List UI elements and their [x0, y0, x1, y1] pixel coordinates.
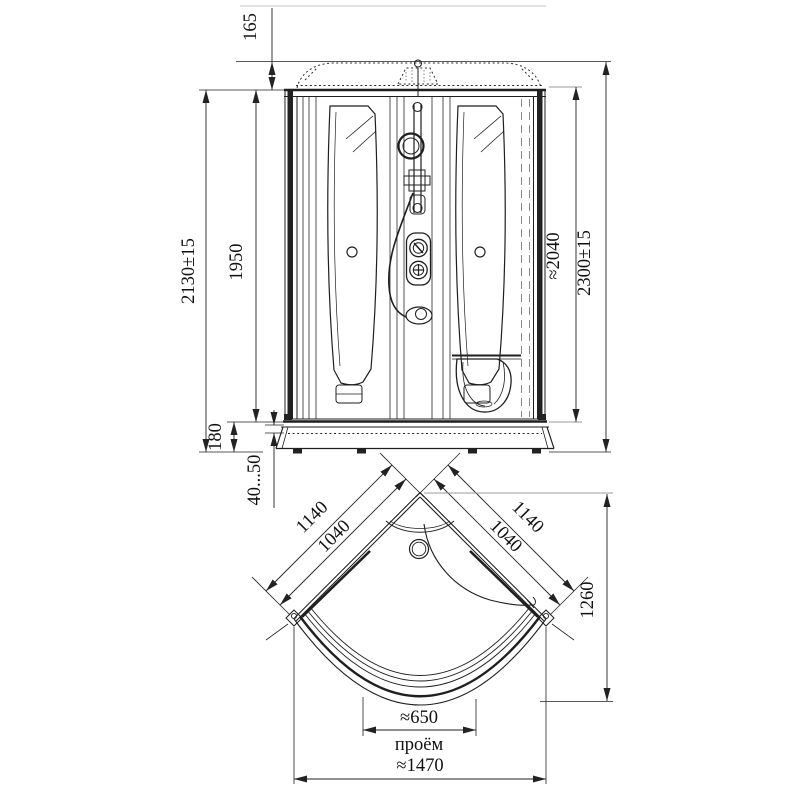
holder-bracket [409, 170, 425, 191]
back-collar-inner [390, 521, 450, 529]
roof-corner-left [305, 68, 317, 80]
label-opening-width: ≈650 [400, 708, 438, 728]
right-door-handle [475, 247, 485, 257]
front-arc-glass [300, 617, 540, 697]
label-opening-caption: проём [395, 735, 444, 755]
tray-foot [532, 449, 541, 454]
front-arc-rim2 [307, 610, 533, 681]
tray-front [276, 414, 554, 454]
ext-post-left [252, 577, 290, 615]
label-dome-height: 165 [241, 13, 261, 41]
shower-column [389, 103, 432, 325]
plan-view: 1140 1040 1140 1040 1260 ≈650 проём ≈147… [252, 453, 613, 784]
ext-apex-left [380, 453, 424, 497]
label-legs-adjust: 40...50 [245, 455, 265, 506]
right-wall-glass [470, 551, 538, 617]
hose-union [406, 307, 432, 324]
drawing-canvas: 165 2130±15 1950 180 40...50 ≈2040 2300±… [0, 0, 800, 800]
tray-foot [357, 449, 366, 454]
left-wall-glass [302, 551, 370, 617]
roof-corner-right [521, 68, 533, 80]
label-tray-height: 180 [206, 423, 226, 451]
left-door-handle [347, 247, 357, 257]
technical-drawing: 165 2130±15 1950 180 40...50 ≈2040 2300±… [0, 0, 800, 800]
left-corner-tick [266, 624, 288, 640]
label-body-height: 1950 [227, 244, 247, 281]
handshower-holder-ring [399, 134, 424, 159]
back-collar [386, 521, 454, 532]
label-glass-height: ≈2040 [544, 232, 564, 279]
left-post [288, 91, 294, 419]
left-door [328, 106, 378, 403]
shower-hose [389, 193, 413, 317]
right-post [537, 91, 543, 419]
front-view: 165 2130±15 1950 180 40...50 ≈2040 2300±… [179, 6, 611, 508]
rail-bottom-housing [410, 195, 425, 214]
label-overall-height-right: 2300±15 [575, 230, 595, 296]
drain-inner [412, 542, 426, 556]
tray-foot [293, 449, 302, 454]
label-overall-width: ≈1470 [396, 756, 443, 776]
label-depth: 1260 [578, 582, 598, 619]
ext-apex-right [416, 453, 460, 497]
front-arc-rim3 [310, 607, 530, 676]
holder-bracket-cross [404, 176, 430, 185]
tray-foot [468, 449, 477, 454]
right-corner-tick [552, 624, 574, 640]
label-overall-height-left: 2130±15 [179, 238, 199, 304]
control-panel [407, 233, 431, 285]
